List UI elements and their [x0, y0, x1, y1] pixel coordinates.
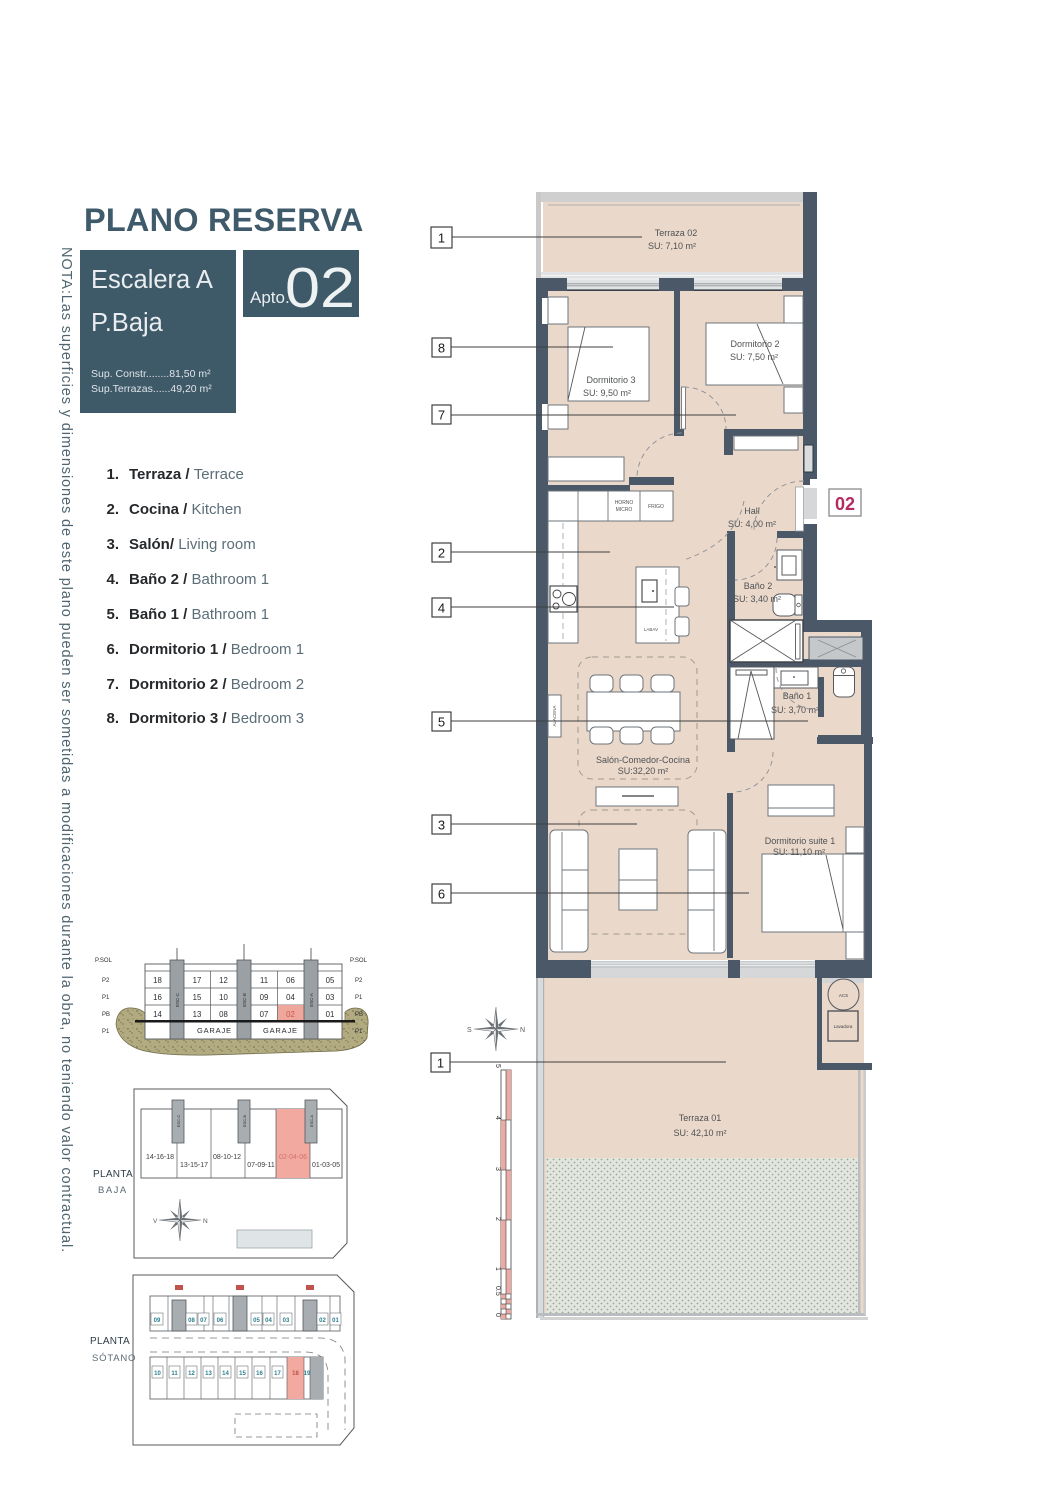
svg-text:Terraza / Terrace: Terraza / Terrace: [129, 466, 244, 483]
svg-text:05: 05: [253, 1318, 260, 1324]
svg-text:5: 5: [494, 1064, 501, 1068]
svg-text:SU: 3,70 m²: SU: 3,70 m²: [771, 705, 819, 715]
svg-text:5: 5: [438, 715, 445, 730]
svg-text:Terraza 01: Terraza 01: [679, 1113, 722, 1123]
svg-text:Baño 2 / Bathroom 1: Baño 2 / Bathroom 1: [129, 571, 269, 588]
svg-text:Baño 2: Baño 2: [744, 581, 773, 591]
svg-text:GARAJE: GARAJE: [263, 1026, 298, 1035]
svg-text:02: 02: [285, 256, 355, 320]
svg-text:18: 18: [292, 1371, 299, 1377]
svg-text:10: 10: [154, 1371, 161, 1377]
svg-text:P.SOL: P.SOL: [95, 958, 113, 964]
svg-text:N: N: [520, 1027, 525, 1034]
svg-text:0.5: 0.5: [494, 1286, 501, 1296]
svg-text:Dormitorio suite 1: Dormitorio suite 1: [765, 836, 836, 846]
svg-text:NOTA:Las superficies y dimensi: NOTA:Las superficies y dimensiones de es…: [58, 247, 74, 1253]
svg-text:P2: P2: [355, 978, 363, 984]
svg-text:01-03-05: 01-03-05: [312, 1162, 340, 1169]
svg-text:Hall: Hall: [744, 506, 760, 516]
svg-text:06: 06: [286, 976, 295, 985]
svg-text:GARAJE: GARAJE: [197, 1026, 232, 1035]
svg-text:Apto.: Apto.: [250, 288, 290, 307]
svg-text:SÓTANO: SÓTANO: [92, 1353, 136, 1364]
svg-text:6.: 6.: [106, 641, 119, 658]
svg-text:P.Baja: P.Baja: [91, 309, 164, 337]
svg-text:S: S: [467, 1027, 472, 1034]
svg-text:7: 7: [438, 408, 445, 423]
svg-text:Dormitorio 3 / Bedroom 3: Dormitorio 3 / Bedroom 3: [129, 710, 304, 727]
svg-text:17: 17: [274, 1371, 281, 1377]
svg-text:SU:32,20 m²: SU:32,20 m²: [618, 766, 669, 776]
svg-text:14: 14: [222, 1371, 229, 1377]
svg-text:BAJA: BAJA: [98, 1185, 128, 1196]
svg-text:2: 2: [494, 1217, 501, 1221]
svg-text:ESC-A: ESC-A: [309, 1115, 314, 1128]
svg-text:PLANO RESERVA: PLANO RESERVA: [84, 202, 364, 238]
svg-text:Dormitorio 2: Dormitorio 2: [730, 339, 779, 349]
svg-text:19: 19: [304, 1371, 311, 1377]
svg-text:06: 06: [217, 1318, 224, 1324]
svg-text:8: 8: [438, 341, 445, 356]
svg-text:P1: P1: [355, 1029, 363, 1035]
svg-text:0: 0: [494, 1313, 501, 1317]
svg-text:SU: 42,10 m²: SU: 42,10 m²: [673, 1128, 726, 1138]
svg-text:2.: 2.: [106, 501, 119, 518]
svg-text:01: 01: [332, 1318, 339, 1324]
svg-text:P2: P2: [102, 978, 110, 984]
svg-text:04: 04: [265, 1318, 272, 1324]
svg-text:05: 05: [326, 976, 335, 985]
svg-text:03: 03: [326, 993, 335, 1002]
svg-text:07: 07: [200, 1318, 207, 1324]
svg-text:P1: P1: [102, 1029, 110, 1035]
svg-text:6: 6: [438, 887, 445, 902]
svg-text:04: 04: [286, 993, 295, 1002]
svg-text:SU: 9,50 m²: SU: 9,50 m²: [583, 388, 631, 398]
svg-text:7.: 7.: [106, 676, 119, 693]
svg-text:08-10-12: 08-10-12: [213, 1154, 241, 1161]
svg-text:ESC-B: ESC-B: [242, 1115, 247, 1128]
svg-text:1: 1: [437, 1056, 444, 1071]
svg-text:Sup.Terrazas......49,20 m²: Sup.Terrazas......49,20 m²: [91, 383, 212, 395]
svg-text:SU: 3,40 m²: SU: 3,40 m²: [733, 594, 781, 604]
svg-text:P1: P1: [355, 995, 363, 1001]
svg-text:ESC-C: ESC-C: [176, 1115, 181, 1128]
svg-text:13-15-17: 13-15-17: [180, 1162, 208, 1169]
svg-text:11: 11: [260, 976, 268, 985]
svg-text:10: 10: [219, 993, 228, 1002]
svg-text:03: 03: [283, 1318, 290, 1324]
svg-text:8.: 8.: [106, 710, 119, 727]
svg-text:PB: PB: [355, 1012, 363, 1018]
svg-text:ESC-C: ESC-C: [175, 992, 180, 1007]
svg-text:P.SOL: P.SOL: [350, 958, 368, 964]
svg-text:Terraza 02: Terraza 02: [655, 228, 698, 238]
svg-text:3: 3: [438, 818, 445, 833]
svg-text:13: 13: [205, 1371, 212, 1377]
svg-text:Salón/ Living room: Salón/ Living room: [129, 536, 256, 553]
svg-text:SU: 7,50 m²: SU: 7,50 m²: [730, 352, 778, 362]
svg-text:12: 12: [219, 976, 228, 985]
svg-text:FRIGO: FRIGO: [648, 504, 664, 510]
svg-text:ACS: ACS: [839, 993, 848, 998]
svg-text:11: 11: [171, 1371, 178, 1377]
svg-text:01: 01: [326, 1010, 335, 1019]
svg-text:14-16-18: 14-16-18: [146, 1154, 174, 1161]
svg-text:1: 1: [494, 1267, 501, 1271]
svg-text:02: 02: [835, 494, 855, 514]
svg-text:17: 17: [193, 976, 202, 985]
svg-text:3: 3: [494, 1167, 501, 1171]
svg-text:09: 09: [154, 1318, 161, 1324]
svg-text:PLANTA: PLANTA: [90, 1336, 130, 1347]
svg-text:1.: 1.: [106, 466, 119, 483]
svg-text:08: 08: [188, 1318, 195, 1324]
svg-text:PLANTA: PLANTA: [93, 1169, 133, 1180]
svg-text:N: N: [203, 1218, 208, 1225]
svg-text:Dormitorio 1 / Bedroom 1: Dormitorio 1 / Bedroom 1: [129, 641, 304, 658]
svg-text:16: 16: [256, 1371, 263, 1377]
svg-text:02-04-06: 02-04-06: [279, 1154, 307, 1161]
svg-text:4: 4: [494, 1116, 501, 1120]
svg-text:07-09-11: 07-09-11: [247, 1162, 275, 1169]
svg-text:07: 07: [260, 1010, 269, 1019]
svg-text:Escalera A: Escalera A: [91, 266, 213, 294]
svg-text:4: 4: [438, 601, 445, 616]
svg-text:HORNO: HORNO: [615, 500, 634, 506]
svg-text:2: 2: [438, 546, 445, 561]
svg-text:MICRO: MICRO: [616, 507, 633, 513]
svg-text:Baño 1 / Bathroom 1: Baño 1 / Bathroom 1: [129, 606, 269, 623]
svg-text:PB: PB: [102, 1012, 110, 1018]
svg-text:15: 15: [193, 993, 202, 1002]
svg-text:Dormitorio 3: Dormitorio 3: [586, 375, 635, 385]
svg-text:ESC-A: ESC-A: [309, 993, 314, 1007]
svg-text:ALACENA: ALACENA: [552, 705, 557, 726]
svg-text:SU: 7,10 m²: SU: 7,10 m²: [648, 241, 696, 251]
svg-text:Dormitorio 2 / Bedroom 2: Dormitorio 2 / Bedroom 2: [129, 676, 304, 693]
svg-text:Salón-Comedor-Cocina: Salón-Comedor-Cocina: [596, 755, 690, 765]
svg-text:LABAV: LABAV: [644, 627, 658, 632]
svg-text:12: 12: [188, 1371, 195, 1377]
svg-text:18: 18: [153, 976, 162, 985]
svg-text:P1: P1: [102, 995, 110, 1001]
svg-text:5.: 5.: [106, 606, 119, 623]
svg-text:4.: 4.: [106, 571, 119, 588]
svg-text:Cocina / Kitchen: Cocina / Kitchen: [129, 501, 242, 518]
svg-text:16: 16: [153, 993, 162, 1002]
svg-text:V: V: [153, 1218, 158, 1225]
svg-text:3.: 3.: [106, 536, 119, 553]
svg-text:Sup. Constr........81,50 m²: Sup. Constr........81,50 m²: [91, 368, 211, 380]
svg-text:ESC-B: ESC-B: [242, 993, 247, 1007]
svg-text:02: 02: [319, 1318, 326, 1324]
svg-text:14: 14: [153, 1010, 162, 1019]
svg-text:1: 1: [438, 231, 445, 246]
svg-text:02: 02: [286, 1010, 295, 1019]
svg-text:Lavadora: Lavadora: [834, 1024, 853, 1029]
svg-text:SU: 4,00 m²: SU: 4,00 m²: [728, 519, 776, 529]
svg-text:SU: 11,10 m²: SU: 11,10 m²: [773, 847, 825, 857]
svg-text:13: 13: [193, 1010, 202, 1019]
svg-text:15: 15: [239, 1371, 246, 1377]
svg-text:08: 08: [219, 1010, 228, 1019]
svg-text:09: 09: [260, 993, 269, 1002]
